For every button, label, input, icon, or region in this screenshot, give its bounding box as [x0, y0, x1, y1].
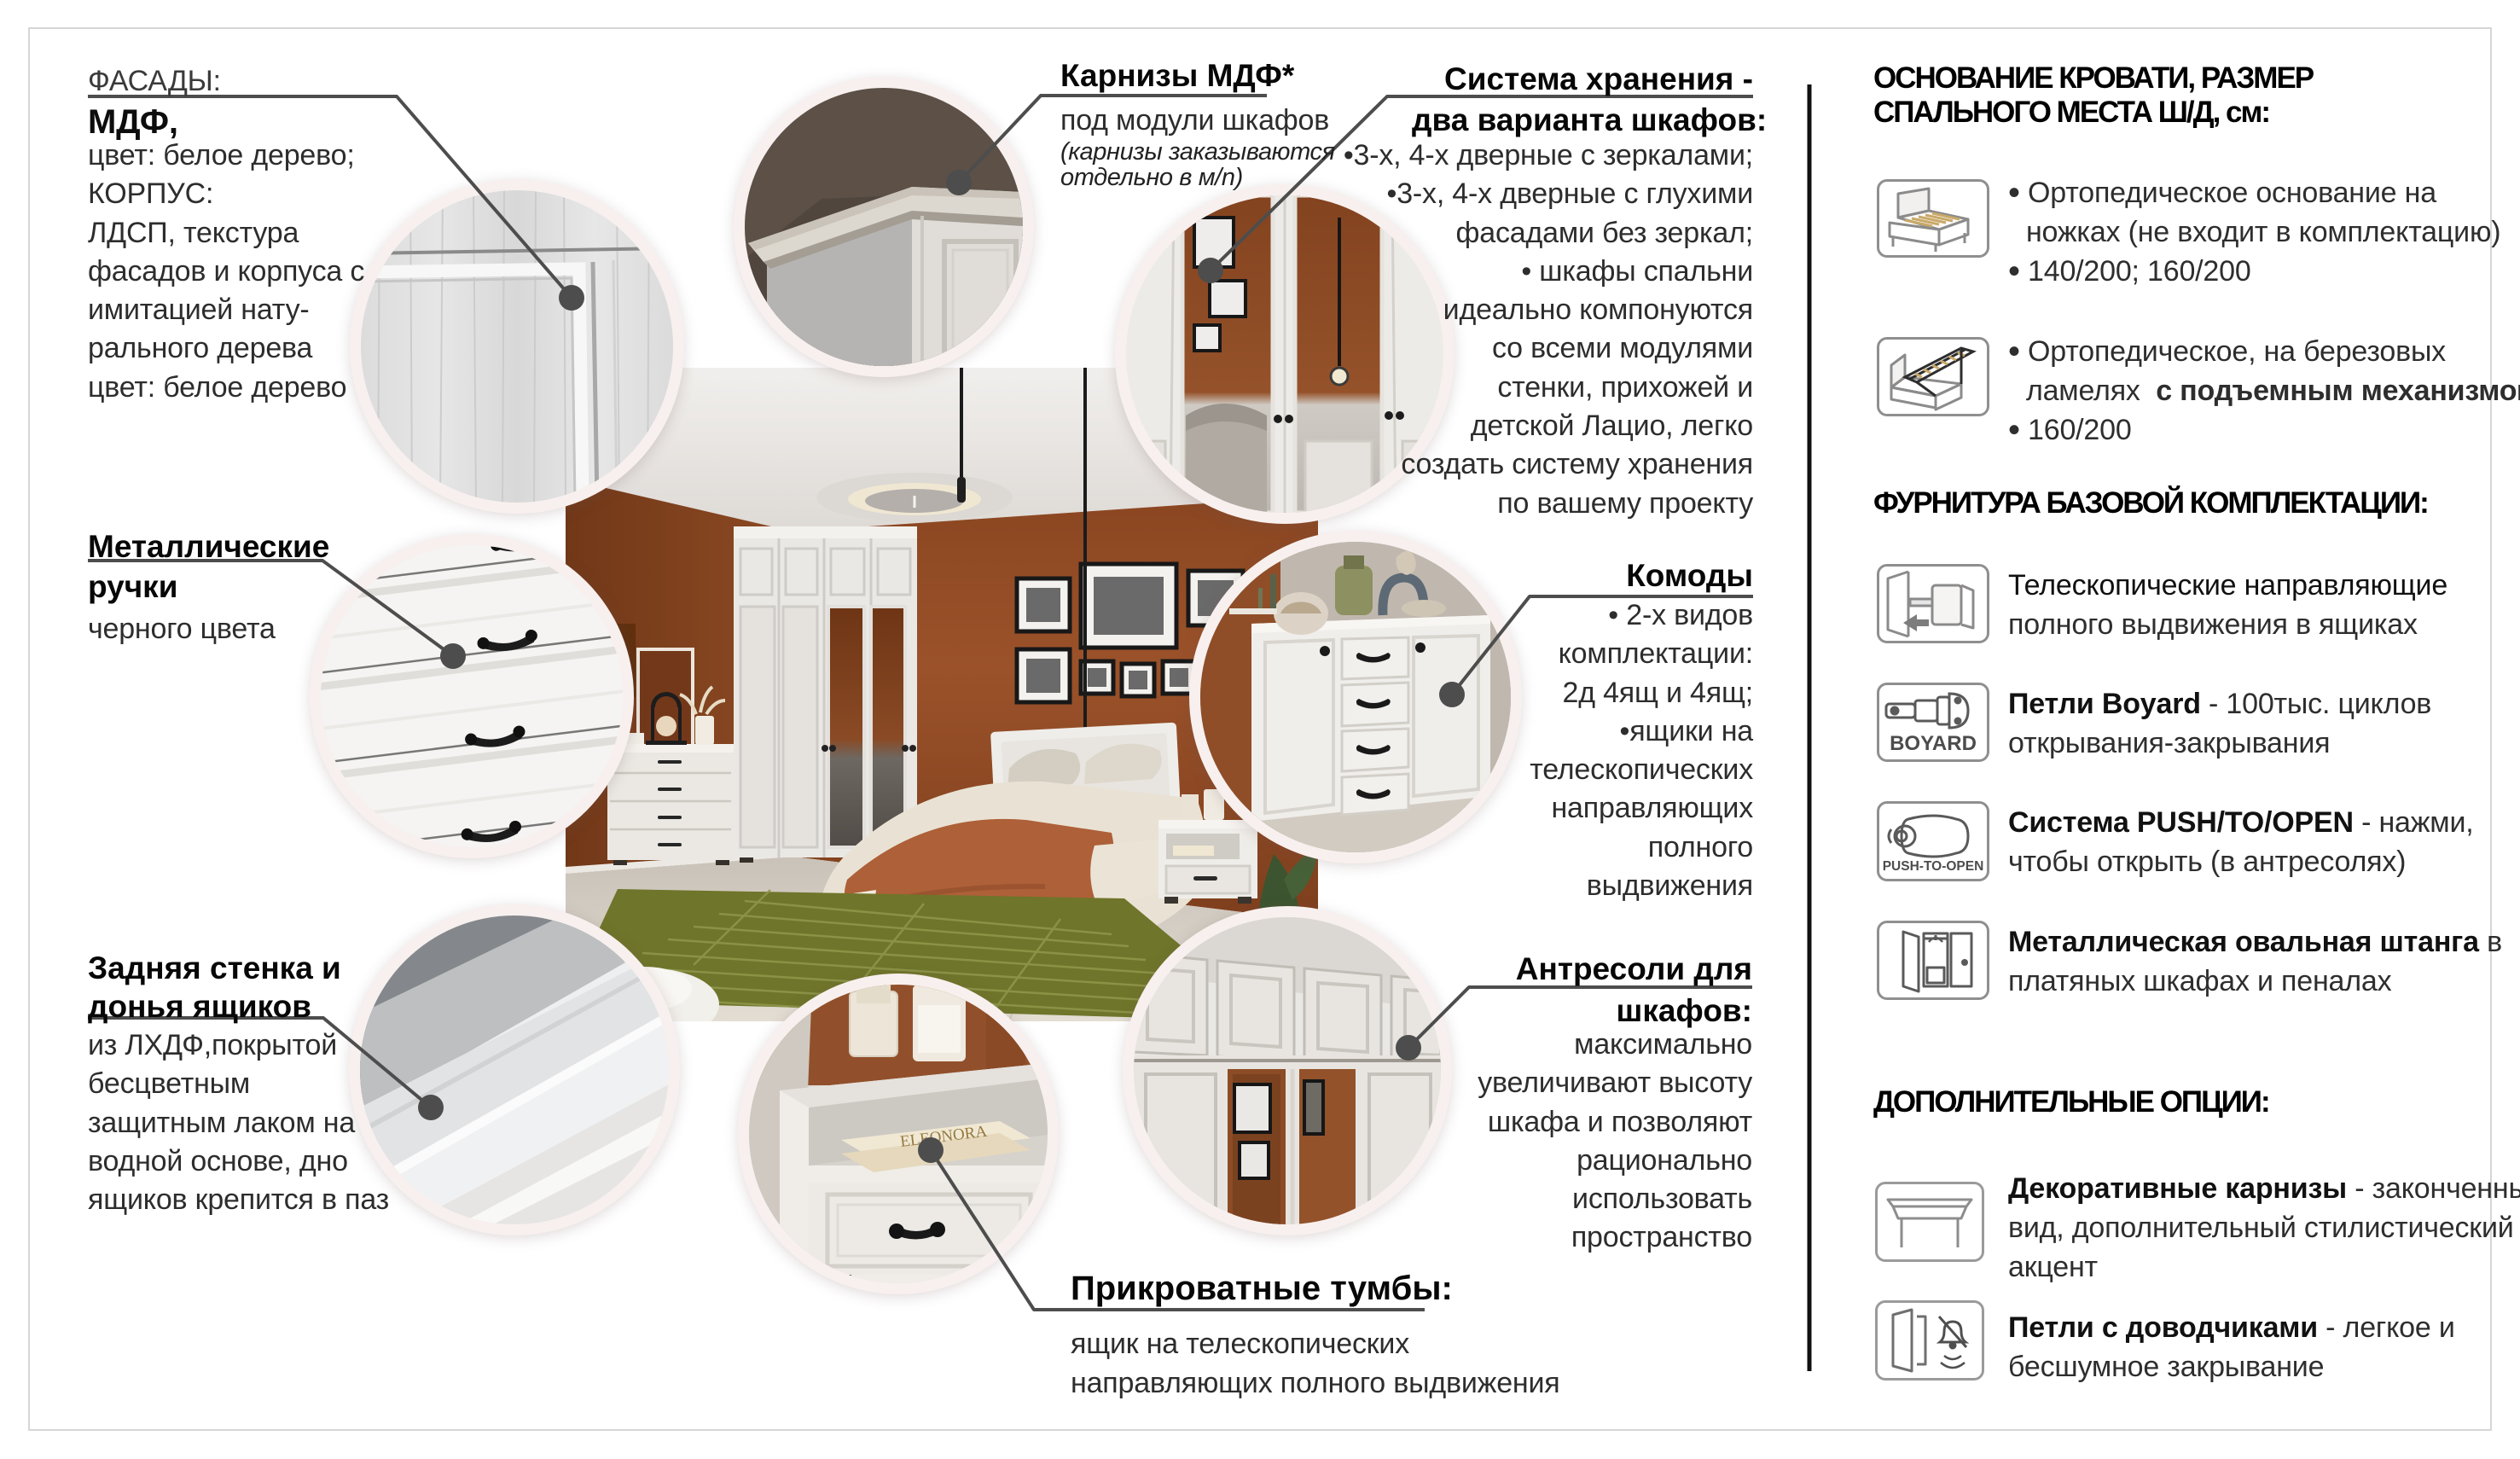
svg-text:PUSH-TO-OPEN: PUSH-TO-OPEN	[1883, 859, 1984, 874]
svg-text:BOYARD: BOYARD	[1890, 732, 1977, 755]
